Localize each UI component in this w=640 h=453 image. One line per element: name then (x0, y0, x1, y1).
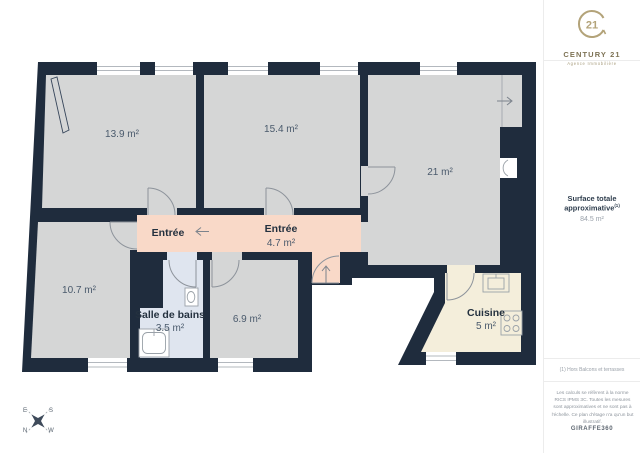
room-15-4-floor (204, 75, 360, 208)
info-sidebar: 21 CENTURY 21 Agence Immobilière Surface… (543, 0, 640, 453)
century21-seal-icon: 21 (574, 7, 610, 43)
floor-plan: 13.9 m² 15.4 m² 21 m² Entrée Entrée 4.7 … (0, 0, 545, 453)
divider (544, 60, 640, 61)
floor-plan-page: 13.9 m² 15.4 m² 21 m² Entrée Entrée 4.7 … (0, 0, 640, 453)
window (88, 358, 127, 372)
surface-value: 84.5 m² (544, 216, 640, 223)
provider-name: GIRAFFE360 (544, 426, 640, 432)
room-area-6-9: 6.9 m² (233, 314, 262, 325)
room-area-21: 21 m² (427, 167, 453, 178)
divider (544, 358, 640, 359)
surface-title-text: Surface totale approximative (564, 194, 616, 212)
window (97, 62, 140, 75)
window (218, 358, 253, 372)
compass-icon: E S N W (23, 408, 54, 434)
bathroom-sink-icon (185, 288, 198, 306)
wall-niche (500, 158, 517, 178)
surface-summary: Surface totale approximative(1) 84.5 m² (544, 194, 640, 223)
bathroom-area: 3.5 m² (156, 323, 185, 334)
room-area-15-4: 15.4 m² (264, 124, 299, 135)
surface-title-superscript: (1) (614, 203, 620, 208)
brand-logo: 21 CENTURY 21 Agence Immobilière (544, 7, 640, 66)
window (320, 62, 358, 75)
window (228, 62, 268, 75)
room-area-10-7: 10.7 m² (62, 285, 97, 296)
compass-e: E (23, 408, 27, 414)
kitchen-label: Cuisine (467, 307, 505, 319)
window (426, 352, 456, 365)
hall-main-area: 4.7 m² (267, 238, 296, 249)
room-area-13-9: 13.9 m² (105, 129, 140, 140)
footnote: (1) Hors Balcons et terrasses (544, 367, 640, 373)
brand-tagline: Agence Immobilière (544, 61, 640, 66)
hall-main-label: Entrée (265, 223, 298, 235)
divider (544, 381, 640, 382)
window (420, 62, 457, 75)
window (155, 62, 193, 75)
compass-n: N (23, 428, 27, 434)
hall-west-label: Entrée (152, 227, 185, 239)
room-6-9-floor (210, 260, 298, 358)
surface-title: Surface totale approximative(1) (544, 194, 640, 212)
room-13-9-floor (42, 75, 196, 208)
bathroom-label: Salle de bains (135, 309, 205, 321)
kitchen-area: 5 m² (476, 321, 497, 332)
compass-w: W (48, 428, 54, 434)
compass-s: S (49, 408, 53, 414)
disclaimer-text: Les calculs se réfèrent à la norme RICS … (551, 390, 634, 426)
brand-name: CENTURY 21 (544, 50, 640, 59)
seal-number: 21 (586, 20, 598, 32)
